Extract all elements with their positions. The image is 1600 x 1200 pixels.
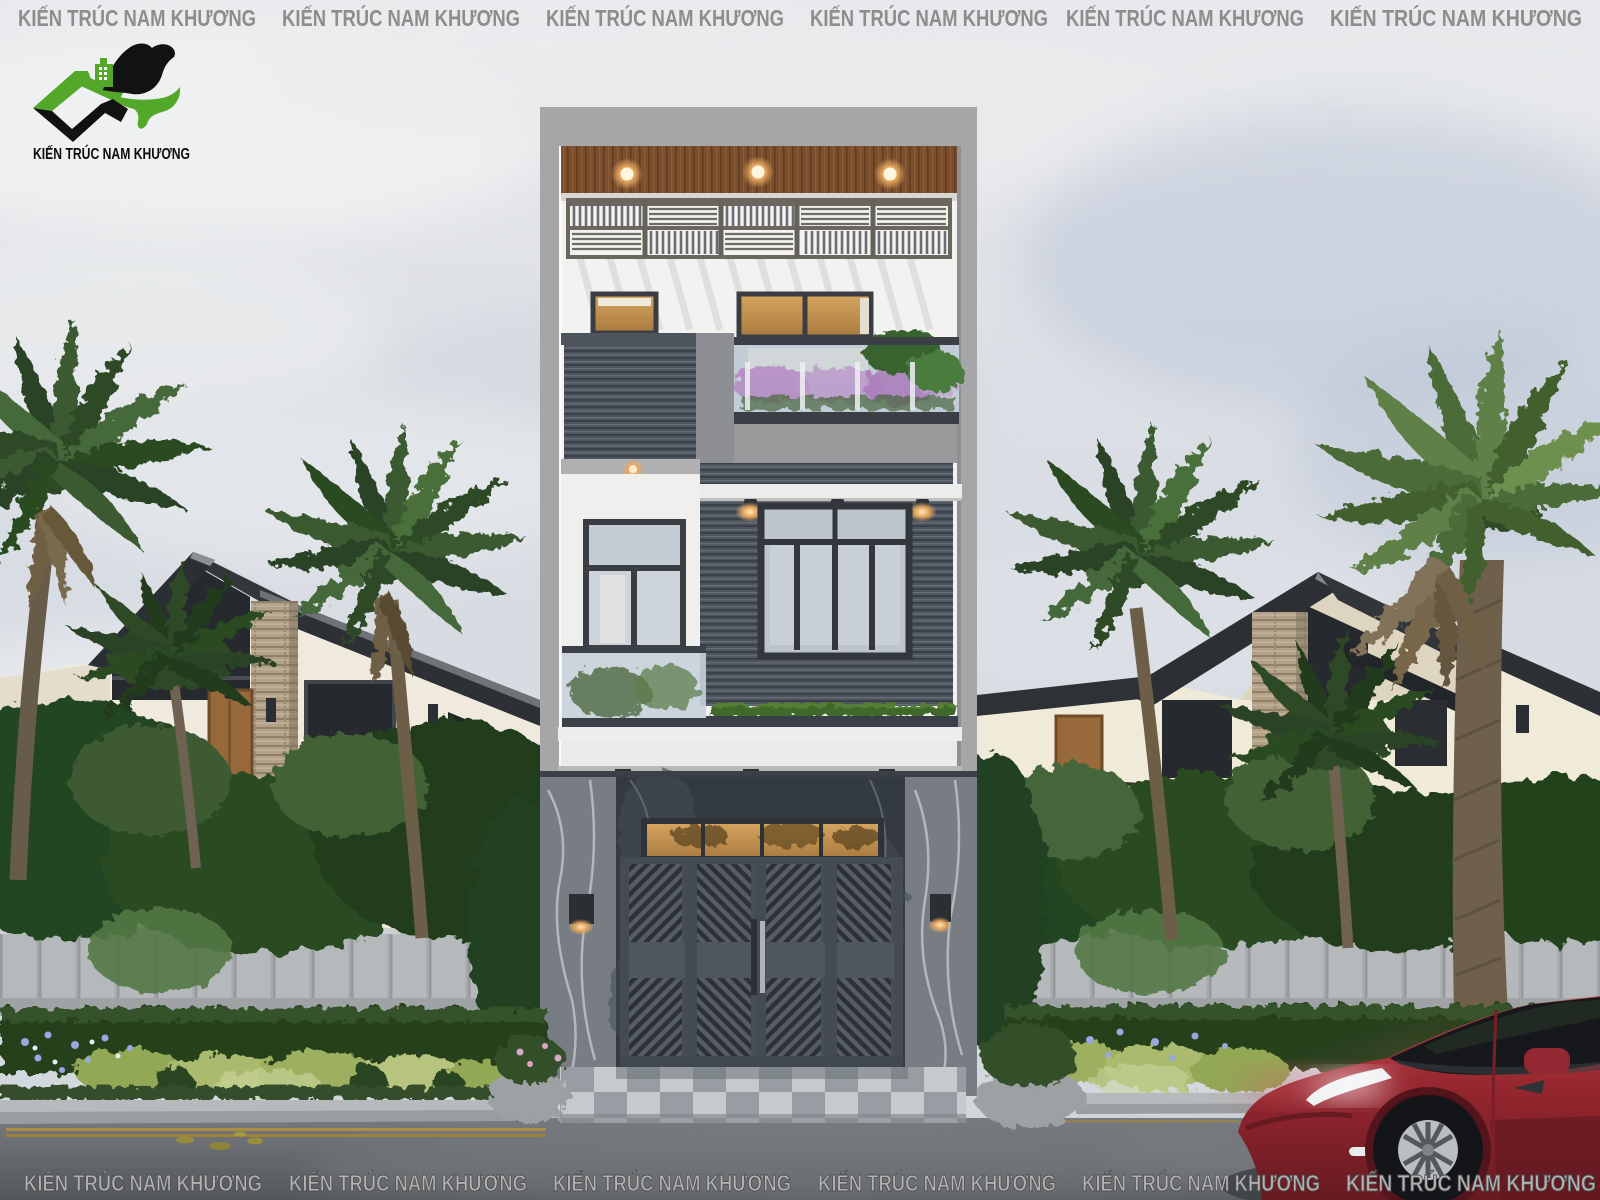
svg-text:KIẾN TRÚC NAM KHƯƠNG: KIẾN TRÚC NAM KHƯƠNG xyxy=(1066,4,1304,31)
svg-text:KIẾN TRÚC NAM KHƯƠNG: KIẾN TRÚC NAM KHƯƠNG xyxy=(810,4,1048,31)
svg-text:KIẾN TRÚC NAM KHƯƠNG: KIẾN TRÚC NAM KHƯƠNG xyxy=(24,1169,262,1196)
svg-text:KIẾN TRÚC NAM KHƯƠNG: KIẾN TRÚC NAM KHƯƠNG xyxy=(818,1169,1056,1196)
svg-text:KIẾN TRÚC NAM KHƯƠNG: KIẾN TRÚC NAM KHƯƠNG xyxy=(1346,1169,1596,1196)
svg-text:KIẾN TRÚC NAM KHƯƠNG: KIẾN TRÚC NAM KHƯƠNG xyxy=(553,1169,791,1196)
svg-text:KIẾN TRÚC NAM KHƯƠNG: KIẾN TRÚC NAM KHƯƠNG xyxy=(282,4,520,31)
svg-text:KIẾN TRÚC NAM KHƯƠNG: KIẾN TRÚC NAM KHƯƠNG xyxy=(1330,4,1582,31)
svg-text:KIẾN TRÚC NAM KHƯƠNG: KIẾN TRÚC NAM KHƯƠNG xyxy=(18,4,256,31)
svg-text:KIẾN TRÚC NAM KHƯƠNG: KIẾN TRÚC NAM KHƯƠNG xyxy=(1082,1169,1320,1196)
svg-text:KIẾN TRÚC NAM KHƯƠNG: KIẾN TRÚC NAM KHƯƠNG xyxy=(33,144,190,163)
svg-text:KIẾN TRÚC NAM KHƯƠNG: KIẾN TRÚC NAM KHƯƠNG xyxy=(289,1169,527,1196)
svg-text:KIẾN TRÚC NAM KHƯƠNG: KIẾN TRÚC NAM KHƯƠNG xyxy=(546,4,784,31)
